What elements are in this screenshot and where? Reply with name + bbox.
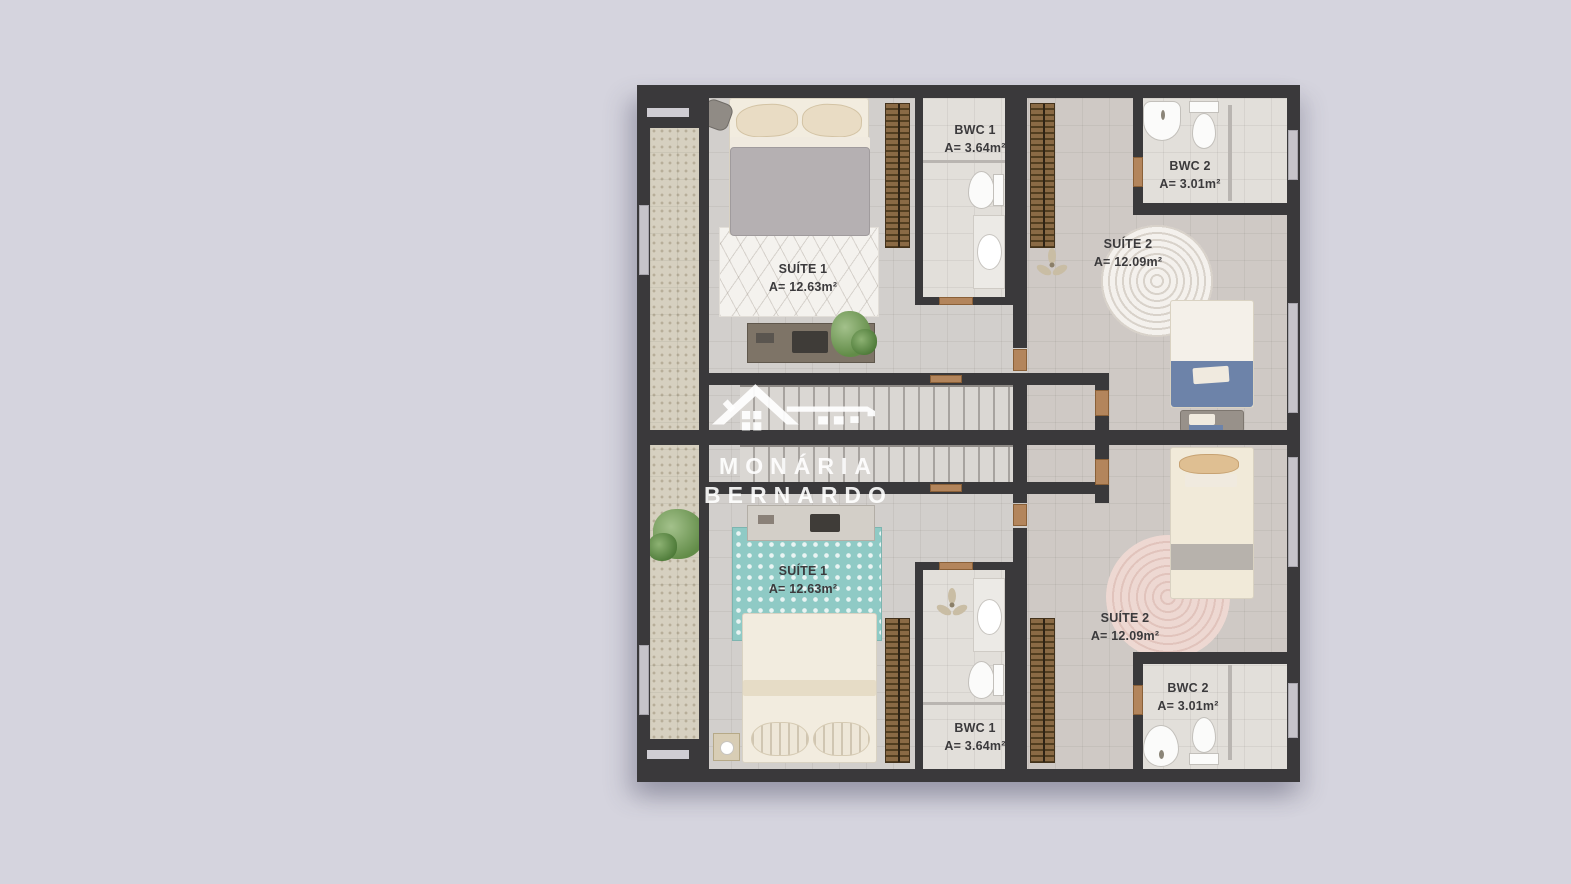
double-bed-bottom bbox=[742, 613, 877, 763]
toilet-tank bbox=[993, 664, 1004, 696]
door-bwc1-top bbox=[939, 297, 973, 305]
gray-throw bbox=[1171, 544, 1253, 570]
wall bbox=[1133, 203, 1287, 215]
wall bbox=[1005, 98, 1013, 305]
wall bbox=[637, 85, 1300, 98]
single-bed-top bbox=[1170, 300, 1254, 408]
sink-icon bbox=[1143, 101, 1181, 141]
ceiling-fan-icon bbox=[935, 588, 969, 622]
door-suite2-bottom bbox=[1095, 459, 1109, 485]
shower-partition bbox=[1228, 105, 1232, 201]
parapet-slot bbox=[647, 750, 689, 759]
parapet-slot bbox=[647, 108, 689, 117]
sink-icon bbox=[977, 234, 1002, 270]
bed-pillow bbox=[1179, 454, 1239, 474]
door-bwc1-bottom bbox=[939, 562, 973, 570]
bed-pillow bbox=[751, 722, 809, 756]
room-label-bwc2-top: BWC 2 A= 3.01m² bbox=[1159, 157, 1220, 193]
bed-pillow bbox=[1192, 366, 1229, 384]
wall bbox=[1013, 373, 1027, 503]
room-area: A= 3.01m² bbox=[1159, 175, 1220, 193]
room-label-suite2-bottom: SUÍTE 2 A= 12.09m² bbox=[1091, 609, 1159, 645]
wall bbox=[1133, 652, 1287, 664]
house-key-logo bbox=[709, 381, 881, 447]
room-label-bwc2-bottom: BWC 2 A= 3.01m² bbox=[1157, 679, 1218, 715]
wall bbox=[1027, 373, 1095, 385]
window bbox=[1288, 683, 1298, 738]
wall bbox=[1027, 482, 1095, 494]
room-name: BWC 1 bbox=[944, 121, 1005, 139]
door-suite1-bottom bbox=[930, 484, 962, 492]
toilet-tank bbox=[993, 174, 1004, 206]
desk-bottom bbox=[747, 505, 875, 541]
single-bed-bottom bbox=[1170, 447, 1254, 599]
toilet-icon bbox=[968, 171, 995, 209]
wardrobe-suite2-bottom bbox=[1030, 618, 1055, 763]
watermark-line2: BERNARDO bbox=[685, 481, 905, 510]
window bbox=[639, 645, 649, 715]
wall bbox=[1005, 562, 1013, 769]
bed-sheet-fold bbox=[743, 680, 876, 696]
floor-plan: SUÍTE 1 A= 12.63m² BWC 1 A= 3.64m² BWC 2… bbox=[637, 85, 1300, 782]
bed-duvet bbox=[730, 147, 870, 236]
room-label-suite1-bottom: SUÍTE 1 A= 12.63m² bbox=[769, 562, 837, 598]
room-area: A= 12.09m² bbox=[1091, 627, 1159, 645]
shower-partition bbox=[1228, 665, 1232, 760]
wall bbox=[915, 98, 923, 305]
sink-counter bbox=[973, 578, 1005, 652]
room-area: A= 3.64m² bbox=[944, 139, 1005, 157]
wall bbox=[1013, 98, 1027, 348]
double-bed-top bbox=[729, 98, 869, 235]
watermark-line1: MONÁRIA bbox=[685, 452, 905, 481]
lamp bbox=[720, 741, 734, 755]
room-area: A= 3.01m² bbox=[1157, 697, 1218, 715]
laptop bbox=[810, 514, 840, 532]
window bbox=[1288, 130, 1298, 180]
laptop bbox=[792, 331, 828, 353]
balcony-plant-icon bbox=[647, 533, 677, 561]
wardrobe-suite1-top bbox=[885, 103, 910, 248]
room-label-suite2-top: SUÍTE 2 A= 12.09m² bbox=[1094, 235, 1162, 271]
bed-bench bbox=[1180, 410, 1244, 432]
shower-partition bbox=[923, 702, 1005, 705]
room-name: SUÍTE 1 bbox=[769, 260, 837, 278]
watermark: MONÁRIA BERNARDO bbox=[685, 381, 905, 510]
window bbox=[639, 205, 649, 275]
toilet-tank bbox=[1189, 101, 1219, 113]
door-bwc2-top bbox=[1133, 157, 1143, 187]
room-area: A= 12.63m² bbox=[769, 278, 837, 296]
door-hall-bottom bbox=[1013, 504, 1027, 526]
wall bbox=[1013, 528, 1027, 769]
wardrobe-suite1-bottom bbox=[885, 618, 910, 763]
bed-pillow bbox=[801, 102, 863, 138]
room-label-bwc1-top: BWC 1 A= 3.64m² bbox=[944, 121, 1005, 157]
door-hall-top bbox=[1013, 349, 1027, 371]
room-name: SUÍTE 2 bbox=[1094, 235, 1162, 253]
door-suite2-top bbox=[1095, 390, 1109, 416]
ceiling-fan-icon bbox=[1035, 248, 1069, 282]
room-name: BWC 2 bbox=[1157, 679, 1218, 697]
door-bwc2-bottom bbox=[1133, 685, 1143, 715]
room-area: A= 12.09m² bbox=[1094, 253, 1162, 271]
wall bbox=[915, 562, 923, 769]
plant-icon bbox=[851, 329, 877, 355]
sink-icon bbox=[977, 599, 1002, 635]
wall bbox=[637, 769, 1300, 782]
desk-item bbox=[756, 333, 774, 343]
room-name: SUÍTE 1 bbox=[769, 562, 837, 580]
drain bbox=[1159, 750, 1164, 759]
desk-item bbox=[758, 515, 774, 524]
nightstand bbox=[713, 733, 740, 761]
room-name: BWC 1 bbox=[944, 719, 1005, 737]
toilet-icon bbox=[1192, 717, 1216, 753]
room-label-suite1-top: SUÍTE 1 A= 12.63m² bbox=[769, 260, 837, 296]
room-area: A= 3.64m² bbox=[944, 737, 1005, 755]
toilet-tank bbox=[1189, 753, 1219, 765]
canvas: SUÍTE 1 A= 12.63m² BWC 1 A= 3.64m² BWC 2… bbox=[0, 0, 1571, 884]
window bbox=[1288, 457, 1298, 567]
bench-pillow bbox=[1189, 414, 1215, 425]
room-area: A= 12.63m² bbox=[769, 580, 837, 598]
toilet-icon bbox=[968, 661, 995, 699]
toilet-icon bbox=[1192, 113, 1216, 149]
sink-counter bbox=[973, 215, 1005, 289]
sink-icon bbox=[1143, 725, 1179, 767]
wardrobe-suite2-top bbox=[1030, 103, 1055, 248]
window bbox=[1288, 303, 1298, 413]
bed-pillow bbox=[1185, 474, 1237, 487]
bed-pillow bbox=[735, 102, 799, 138]
room-name: BWC 2 bbox=[1159, 157, 1220, 175]
room-name: SUÍTE 2 bbox=[1091, 609, 1159, 627]
door-suite1-top bbox=[930, 375, 962, 383]
bed-pillow bbox=[813, 722, 870, 756]
faucet bbox=[1161, 110, 1165, 120]
shower-partition bbox=[923, 160, 1005, 163]
room-label-bwc1-bottom: BWC 1 A= 3.64m² bbox=[944, 719, 1005, 755]
